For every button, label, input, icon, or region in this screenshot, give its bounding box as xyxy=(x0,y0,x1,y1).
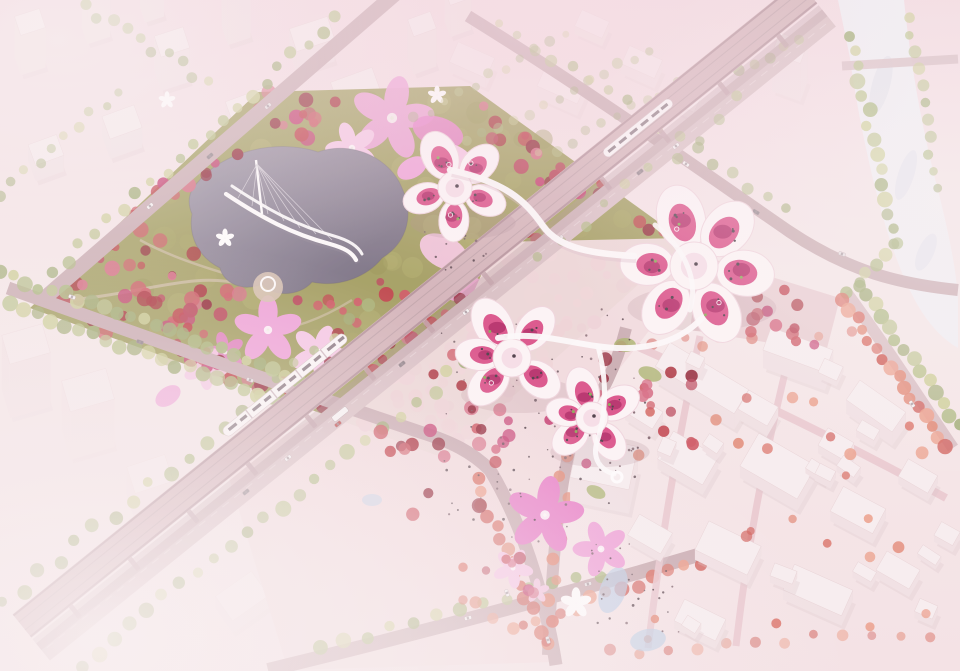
pink-tint xyxy=(0,0,960,671)
atmosphere-fog xyxy=(0,0,960,671)
aerial-rendering: Aerial architectural rendering of a cher… xyxy=(0,0,960,671)
rendering-canvas xyxy=(0,0,960,671)
